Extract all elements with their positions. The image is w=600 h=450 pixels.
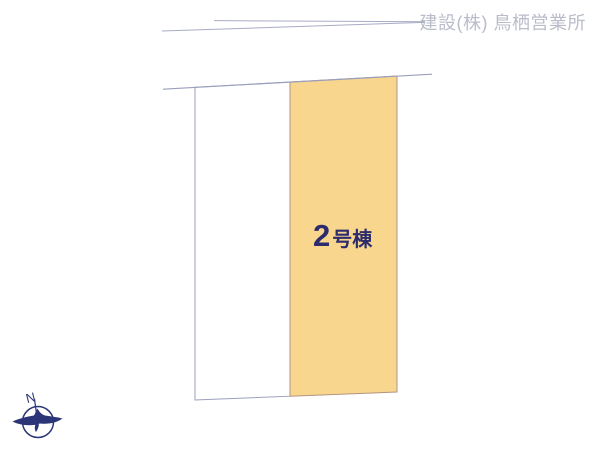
compass-bird-shape <box>13 409 63 426</box>
compass-tail-shape <box>35 424 39 432</box>
compass-north-letter: N <box>24 389 37 406</box>
building-2-suffix: 号棟 <box>332 223 372 252</box>
road-edge-lower-line <box>162 22 424 31</box>
road-edge-upper-line <box>214 21 424 22</box>
building-2-number: 2 <box>313 220 330 251</box>
compass-north-graphic: N <box>8 385 68 447</box>
parcel-vacant <box>195 82 290 400</box>
compass-north-icon: N <box>8 385 68 447</box>
building-2-label: 2 号棟 <box>313 220 372 252</box>
site-plan-canvas: 建設(株) 鳥栖営業所 2 号棟 N <box>0 0 600 450</box>
site-plan-drawing <box>0 0 600 450</box>
